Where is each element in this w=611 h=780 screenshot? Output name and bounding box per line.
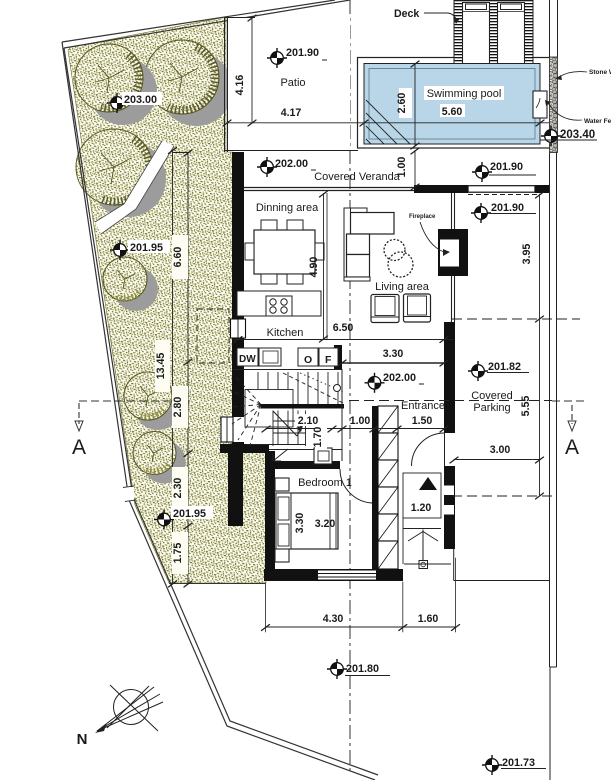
svg-text:1.00: 1.00: [350, 415, 371, 427]
svg-text:1.60: 1.60: [418, 613, 439, 625]
svg-text:203.00: 203.00: [124, 94, 157, 106]
svg-text:Dinning area: Dinning area: [256, 202, 319, 214]
svg-text:201.90: 201.90: [491, 202, 524, 214]
svg-text:3.20: 3.20: [315, 518, 336, 530]
svg-text:202.00: 202.00: [383, 372, 416, 384]
svg-text:Kitchen: Kitchen: [267, 327, 304, 339]
svg-text:Entrance: Entrance: [401, 400, 445, 412]
svg-text:F: F: [325, 354, 332, 366]
svg-text:Parking: Parking: [473, 402, 510, 414]
svg-text:Bedroom 1: Bedroom 1: [298, 477, 352, 489]
svg-text:5.55: 5.55: [520, 396, 532, 417]
svg-text:Covered: Covered: [471, 390, 513, 402]
svg-text:1.70: 1.70: [312, 427, 324, 448]
svg-text:Covered Veranda: Covered Veranda: [314, 171, 400, 183]
svg-text:3.00: 3.00: [490, 444, 511, 456]
svg-text:201.82: 201.82: [488, 361, 521, 373]
svg-text:Fireplace: Fireplace: [409, 214, 436, 220]
svg-text:2.30: 2.30: [172, 478, 184, 499]
svg-text:201.90: 201.90: [286, 47, 319, 59]
svg-text:Deck: Deck: [394, 8, 419, 20]
svg-text:2.80: 2.80: [172, 397, 184, 418]
svg-text:6.60: 6.60: [172, 247, 184, 268]
svg-text:1.00: 1.00: [396, 157, 408, 178]
svg-text:Living area: Living area: [375, 281, 430, 293]
svg-text:A: A: [72, 436, 86, 459]
svg-text:3.30: 3.30: [294, 513, 306, 534]
svg-text:13.45: 13.45: [155, 353, 167, 380]
svg-text:Stone Wall: Stone Wall: [589, 69, 611, 76]
svg-text:Water Feature: Water Feature: [584, 118, 611, 125]
svg-text:201.73: 201.73: [502, 757, 535, 769]
svg-text:2.60: 2.60: [396, 93, 408, 114]
svg-text:1.50: 1.50: [412, 415, 433, 427]
svg-text:6.50: 6.50: [333, 322, 354, 334]
svg-text:DW: DW: [239, 354, 256, 365]
svg-text:201.95: 201.95: [130, 242, 163, 254]
svg-text:A: A: [565, 436, 579, 459]
svg-text:201.80: 201.80: [346, 663, 379, 675]
svg-text:5.60: 5.60: [442, 106, 463, 118]
svg-text:Patio: Patio: [280, 77, 305, 89]
svg-text:N: N: [77, 731, 88, 748]
svg-text:Swimming pool: Swimming pool: [427, 88, 502, 100]
svg-text:1.20: 1.20: [411, 502, 432, 514]
svg-text:202.00: 202.00: [275, 158, 308, 170]
svg-text:4.17: 4.17: [281, 107, 302, 119]
svg-text:4.90: 4.90: [308, 257, 320, 278]
svg-text:3.95: 3.95: [521, 244, 533, 265]
svg-text:3.30: 3.30: [383, 348, 404, 360]
svg-text:4.16: 4.16: [234, 75, 246, 96]
svg-text:1.75: 1.75: [172, 543, 184, 564]
svg-text:201.90: 201.90: [490, 161, 523, 173]
svg-text:4.30: 4.30: [323, 613, 344, 625]
svg-text:203.40: 203.40: [560, 129, 595, 141]
svg-text:O: O: [304, 354, 312, 366]
svg-text:201.95: 201.95: [173, 508, 206, 520]
